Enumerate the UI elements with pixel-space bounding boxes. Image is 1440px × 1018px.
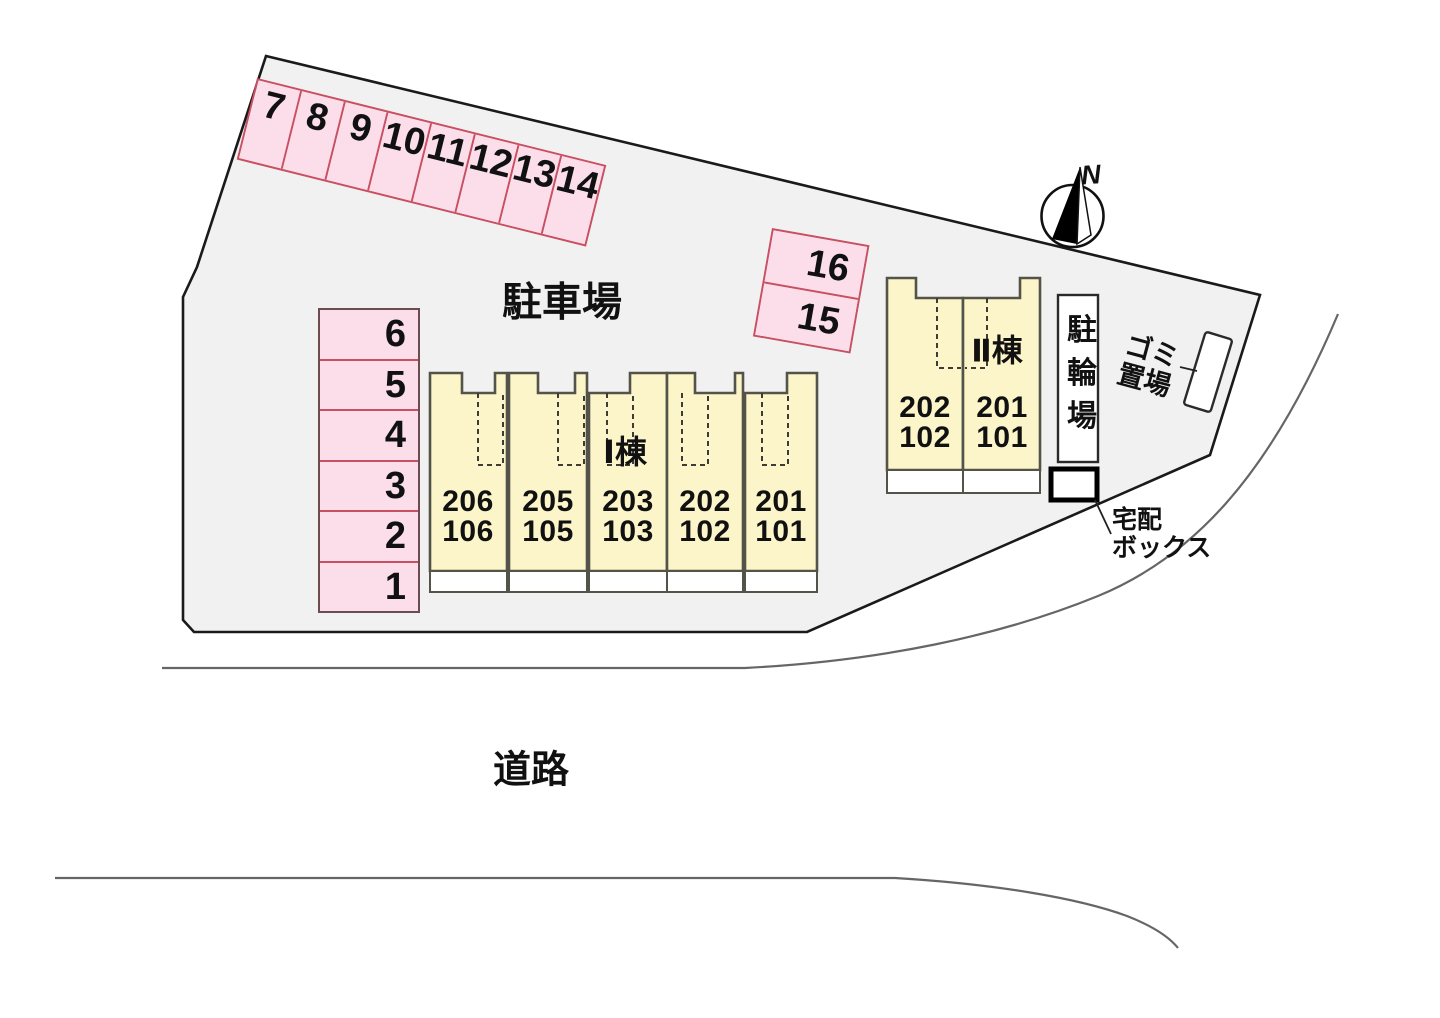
parking-lot-label: 駐車場	[502, 281, 622, 326]
parking-left-space: 5	[320, 361, 418, 412]
unit-number-upper: 206	[442, 487, 494, 517]
parking-left-space: 6	[320, 310, 418, 361]
unit-number-lower: 106	[442, 517, 494, 547]
unit-label: 206106	[442, 487, 494, 547]
unit-label: 205105	[522, 487, 574, 547]
unit-number-lower: 101	[755, 517, 807, 547]
delivery-box-leader-line	[1095, 500, 1111, 534]
unit-number-lower: 105	[522, 517, 574, 547]
unit-label: 201101	[976, 393, 1028, 453]
unit-label: 203103	[602, 487, 654, 547]
unit-number-upper: 205	[522, 487, 574, 517]
unit-number-lower: 102	[679, 517, 731, 547]
unit-number-upper: 202	[679, 487, 731, 517]
north-needle-icon	[1052, 167, 1080, 244]
unit-label: 201101	[755, 487, 807, 547]
building-2-shape	[887, 278, 1040, 493]
building-1-balconies	[430, 571, 817, 592]
parking-block-side: 1615	[753, 228, 870, 354]
parking-column-left: 654321	[318, 308, 420, 613]
road-label: 道路	[493, 750, 569, 793]
unit-label: 202102	[899, 393, 951, 453]
building-1-name: Ⅰ棟	[603, 435, 647, 471]
north-label: N	[1080, 159, 1102, 191]
road-line-lower	[55, 878, 1178, 948]
unit-number-upper: 202	[899, 393, 951, 423]
unit-number-upper: 201	[976, 393, 1028, 423]
delivery-box	[1051, 469, 1097, 500]
unit-number-upper: 203	[602, 487, 654, 517]
unit-label: 202102	[679, 487, 731, 547]
delivery-box-label: 宅配 ボックス	[1112, 506, 1211, 562]
unit-number-lower: 102	[899, 423, 951, 453]
unit-number-lower: 103	[602, 517, 654, 547]
parking-left-space: 1	[320, 563, 418, 612]
unit-number-upper: 201	[755, 487, 807, 517]
parking-left-space: 3	[320, 462, 418, 513]
parking-left-space: 4	[320, 411, 418, 462]
parking-left-space: 2	[320, 512, 418, 563]
bike-parking-label: 駐輪場	[1063, 314, 1093, 443]
building-2-name: Ⅱ棟	[971, 335, 1022, 370]
unit-number-lower: 101	[976, 423, 1028, 453]
site-plan-canvas: 7891011121314 1615 654321 駐車場道路N駐輪場ゴミ 置場…	[0, 0, 1440, 1018]
building-1-shape	[430, 373, 817, 592]
